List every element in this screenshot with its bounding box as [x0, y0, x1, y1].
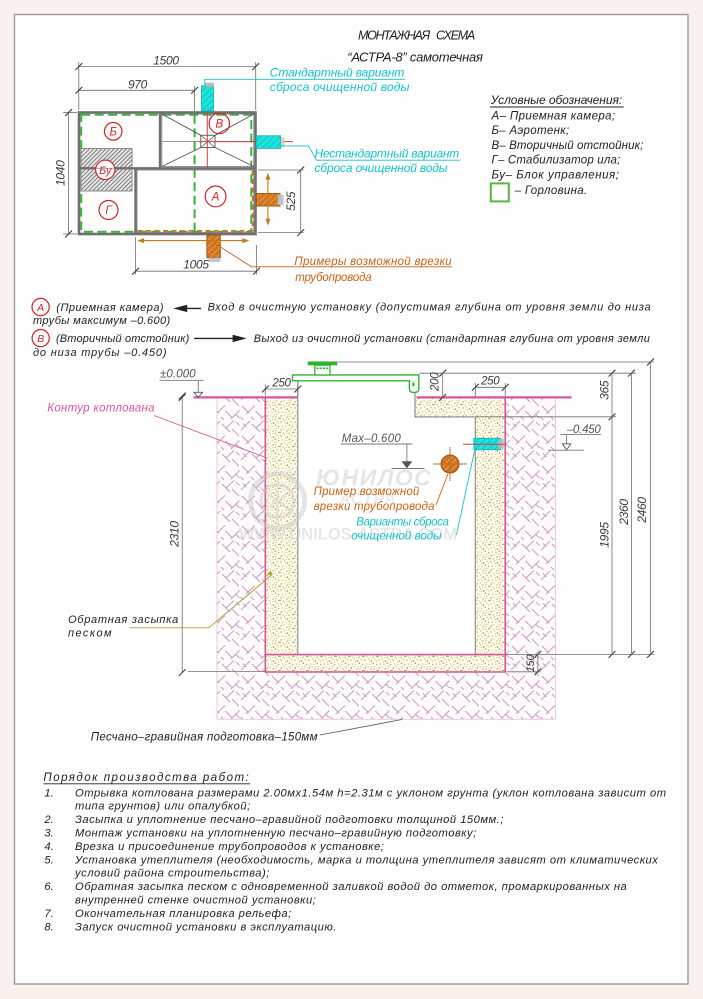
- svg-text:сброса очищенной воды: сброса очищенной воды: [315, 161, 448, 175]
- svg-text:Обратная засыпка песком с одно: Обратная засыпка песком с одновременной …: [75, 881, 627, 893]
- svg-text:970: 970: [128, 77, 148, 91]
- svg-text:250: 250: [480, 375, 500, 387]
- svg-text:трубы максимум –0.600): трубы максимум –0.600): [33, 315, 171, 327]
- svg-text:1040: 1040: [54, 160, 68, 186]
- svg-text:(Вторичный отстойник): (Вторичный отстойник): [56, 333, 190, 345]
- svg-text:Обратная засыпка: Обратная засыпка: [68, 614, 179, 626]
- svg-text:5.: 5.: [44, 854, 53, 866]
- svg-text:1005: 1005: [183, 258, 209, 272]
- svg-text:2310: 2310: [168, 521, 182, 548]
- svg-text:6.: 6.: [44, 881, 53, 893]
- svg-text:типа грунтов) или опалубкой;: типа грунтов) или опалубкой;: [75, 801, 251, 813]
- svg-text:Пример возможной: Пример возможной: [314, 486, 420, 498]
- svg-text:365: 365: [597, 380, 611, 400]
- svg-text:Варианты сброса: Варианты сброса: [356, 517, 448, 529]
- svg-text:Окончательная планировка релье: Окончательная планировка рельефа;: [75, 908, 292, 920]
- svg-text:“АСТРА-8” самотечная: “АСТРА-8” самотечная: [347, 50, 483, 65]
- svg-text:2360: 2360: [617, 499, 631, 526]
- svg-text:250: 250: [271, 377, 291, 389]
- svg-text:Примеры возможной врезки: Примеры возможной врезки: [294, 256, 452, 268]
- svg-text:2460: 2460: [635, 497, 649, 524]
- svg-text:врезки трубопровода: врезки трубопровода: [314, 501, 435, 513]
- svg-text:2.: 2.: [43, 814, 53, 826]
- svg-text:Г– Стабилизатор ила;: Г– Стабилизатор ила;: [492, 155, 621, 167]
- svg-text:Контур котлована: Контур котлована: [47, 403, 155, 415]
- svg-text:Отрывка котлована размерами 2.: Отрывка котлована размерами 2.00мх1.54м …: [75, 787, 667, 799]
- svg-text:сброса очищенной воды: сброса очищенной воды: [270, 80, 410, 94]
- svg-text:Max–0.600: Max–0.600: [342, 433, 402, 445]
- svg-text:внутренней стенке очистной уст: внутренней стенке очистной установки;: [75, 895, 316, 907]
- svg-text:Условные обозначения:: Условные обозначения:: [490, 93, 622, 107]
- svg-text:Вход в очистную установку (доп: Вход в очистную установку (допустимая гл…: [208, 302, 652, 314]
- svg-text:очищенной воды: очищенной воды: [351, 531, 442, 543]
- svg-text:условий района строительства);: условий района строительства);: [74, 868, 270, 880]
- svg-text:1995: 1995: [597, 522, 611, 548]
- svg-text:Г: Г: [105, 205, 112, 217]
- svg-text:Бу– Блок управления;: Бу– Блок управления;: [492, 169, 620, 181]
- svg-text:3.: 3.: [44, 828, 53, 840]
- svg-text:Б: Б: [109, 127, 117, 139]
- svg-text:Б– Аэротенк;: Б– Аэротенк;: [492, 125, 570, 137]
- svg-text:–0.450: –0.450: [566, 424, 601, 436]
- svg-text:Монтаж установки на уплотненну: Монтаж установки на уплотненную песчано–…: [75, 828, 477, 840]
- svg-text:Запуск очистной установки в эк: Запуск очистной установки в эксплуатацию…: [75, 921, 337, 933]
- svg-text:песком: песком: [68, 627, 113, 639]
- svg-text:1500: 1500: [153, 54, 179, 68]
- svg-text:А– Приемная камера;: А– Приемная камера;: [491, 110, 616, 122]
- svg-text:В– Вторичный отстойник;: В– Вторичный отстойник;: [492, 140, 644, 152]
- svg-text:±0.000: ±0.000: [160, 369, 196, 381]
- svg-text:до низа трубы –0.450): до низа трубы –0.450): [33, 347, 167, 359]
- svg-text:Выход из очистной установки (с: Выход из очистной установки (стандартная…: [254, 333, 651, 345]
- svg-text:4.: 4.: [44, 841, 53, 853]
- svg-text:А: А: [211, 192, 220, 204]
- svg-text:В: В: [215, 119, 223, 131]
- svg-text:Врезка и присоединение трубопр: Врезка и присоединение трубопроводов к у…: [75, 841, 384, 853]
- svg-text:525: 525: [284, 191, 298, 211]
- svg-text:В: В: [37, 333, 44, 345]
- svg-text:Стандартный вариант: Стандартный вариант: [270, 66, 405, 80]
- svg-text:1.: 1.: [44, 787, 53, 799]
- svg-text:8.: 8.: [44, 921, 53, 933]
- svg-text:7.: 7.: [44, 908, 53, 920]
- svg-text:А: А: [36, 302, 44, 314]
- svg-text:Песчано–гравийная подготовка–1: Песчано–гравийная подготовка–150мм: [91, 732, 318, 744]
- svg-text:трубопровода: трубопровода: [295, 272, 371, 284]
- svg-text:Порядок производства работ:: Порядок производства работ:: [43, 772, 250, 784]
- svg-text:Засыпка и уплотнение песчано–г: Засыпка и уплотнение песчано–гравийной п…: [75, 814, 504, 826]
- svg-text:200: 200: [429, 372, 441, 392]
- svg-text:Установка утеплителя (необходи: Установка утеплителя (необходимость, мар…: [74, 854, 658, 866]
- svg-text:– Горловина.: – Горловина.: [514, 185, 588, 197]
- svg-text:МОНТАЖНАЯ СХЕМА: МОНТАЖНАЯ СХЕМА: [358, 29, 475, 43]
- svg-text:(Приемная камера): (Приемная камера): [56, 302, 164, 314]
- svg-text:Нестандартный вариант: Нестандартный вариант: [315, 147, 460, 161]
- svg-text:Бу: Бу: [99, 165, 113, 177]
- svg-text:150: 150: [525, 654, 537, 673]
